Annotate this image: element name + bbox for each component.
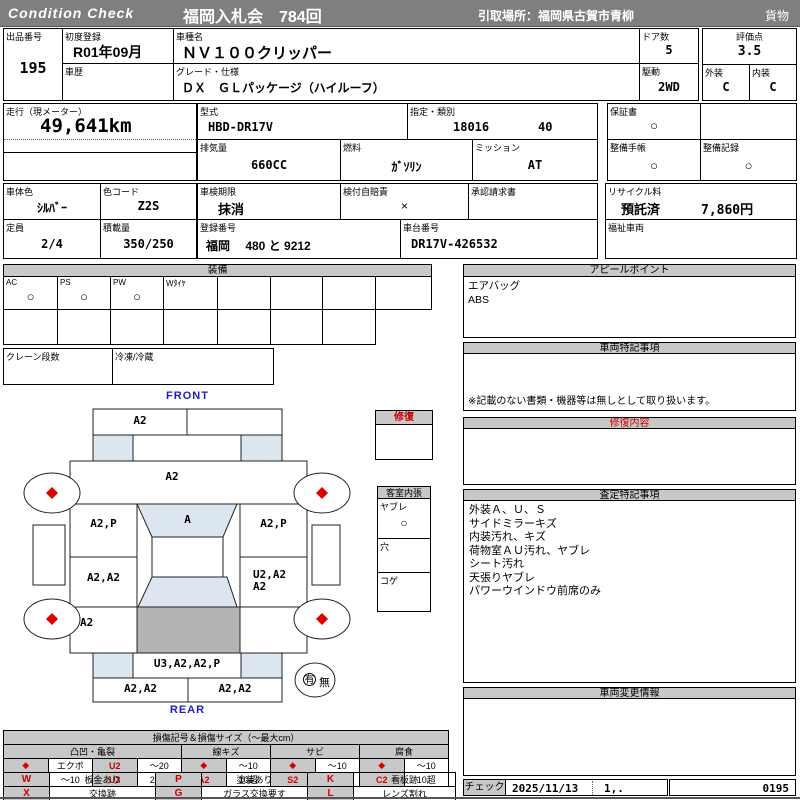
equipment-cell-empty [375,276,432,310]
pickup-location: 引取場所：福岡県古賀市青柳 [478,7,634,24]
exhibit-number-value: 195 [4,59,62,77]
legend-cell: ～10 [226,759,271,773]
legend-code: K [308,773,354,787]
auction-condition-sheet: Condition Check 福岡入札会 784回 引取場所：福岡県古賀市青柳… [0,0,800,800]
spare-present-mark: 有 [303,673,316,686]
load-capacity-cell: 積載量 350/250 [100,219,197,259]
vehicle-notes-body: ※記載のない書類・機器等は無しとして取り扱います。 [463,353,796,411]
legend-group: 線キズ [182,745,271,759]
vehicle-notes-footnote: ※記載のない書類・機器等は無しとして取り扱います。 [468,392,715,407]
equipment-cell-wtire: Wﾀｲﾔ [163,276,218,310]
spare-absent-label: 無 [319,674,330,690]
equipment-cell-ps: PS ○ [57,276,111,310]
chassis-number-cell: 車台番号 DR17V-426532 [400,219,598,259]
warranty-label: 保証書 [610,105,637,118]
diamond-icon: ◆ [271,759,316,773]
assessment-line: 内装汚れ、キズ [469,531,790,545]
diamond-icon: ◆ [360,759,405,773]
check-label-cell: チェック [463,779,506,796]
capacity-value: 2/4 [4,237,100,251]
fuel-value: ｶﾞｿﾘﾝ [341,158,472,175]
tail-right [241,653,282,678]
transmission-label: ミッション [475,141,520,154]
equipment-label: Wﾀｲﾔ [166,278,186,289]
panel-code-quarter-left: A2 [80,616,93,629]
doors-value: 5 [640,43,698,57]
panel-code-rear-bumper-left: A2,A2 [93,682,188,695]
legend-code: U2 [93,759,138,773]
score-cell: 評価点 3.5 [702,28,797,65]
panel-code-back-panel: U3,A2,A2,P [133,657,241,670]
warranty-mark: ○ [608,118,700,133]
side-step-left [33,525,65,585]
displacement-value: 660CC [198,158,340,172]
class-value-2: 40 [538,120,552,134]
inspection-label: 車検期限 [200,185,236,198]
diamond-icon: ◆ [4,759,49,773]
car-diagram: FRONT A2 A2 A A2,P A2,P A2,A2 U2,A2 A2 A… [0,390,460,720]
drive-value: 2WD [640,80,698,94]
class-value-1: 18016 [453,120,489,134]
grade-cell: グレード・仕様 ＤＸ ＧＬパッケージ（ハイルーフ） [173,63,640,101]
exterior-grade-value: C [703,80,749,94]
assessment-line: パワーウインドウ前席のみ [469,585,790,599]
appeal-line: ABS [468,293,791,307]
registration-number-label: 登録番号 [200,221,236,234]
fuel-cell: 燃料 ｶﾞｿﾘﾝ [340,139,473,181]
rear-window [138,577,237,607]
equipment-mark: ○ [58,289,110,304]
auction-title: 福岡入札会 784回 [183,3,322,27]
model-name-cell: 車種名 ＮＶ１００クリッパー [173,28,640,64]
chassis-number-label: 車台番号 [403,221,439,234]
body-color-cell: 車体色 ｼﾙﾊﾞｰ [3,183,101,220]
legend-cell: エクボ [48,759,93,773]
equipment-cell-pw: PW ○ [110,276,164,310]
car-diagram-drawing [0,390,460,720]
legend-cell: 看板跡 [354,773,456,787]
model-code-cell: 型式 HBD-DR17V [197,103,408,140]
legend-cell: ～10 [404,759,449,773]
drive-cell: 駆動 2WD [639,63,699,101]
legend-group: 腐食 [360,745,449,759]
inspection-cell: 車検期限 抹消 [197,183,341,220]
cowl-right [241,435,282,462]
color-code-label: 色コード [103,185,139,198]
legend-cell: ～20 [137,759,182,773]
divider [4,152,196,153]
equipment-cell-empty [3,309,58,345]
crane-label: クレーン段数 [6,350,60,363]
equipment-cell-empty [163,309,218,345]
rear-label: REAR [150,704,225,716]
assessment-line: 天張りヤブレ [469,572,790,586]
model-code-value: HBD-DR17V [208,120,273,134]
cabin-roof [152,537,223,577]
inspection-value: 抹消 [218,199,244,218]
recycle-fee-status: 預託済 [621,199,660,218]
recycle-fee-cell: リサイクル料 預託済 7,860円 [605,183,797,220]
equipment-label: PS [60,278,71,287]
equipment-label: AC [6,278,17,287]
doors-cell: ドア数 5 [639,28,699,64]
panel-code-windshield: A [152,513,223,526]
appeal-points-body: エアバッグ ABS [463,276,796,338]
registration-number-value: 福岡 480 と 9212 [206,237,311,254]
displacement-cell: 排気量 660CC [197,139,341,181]
history-label: 車歴 [65,65,83,78]
front-label: FRONT [150,390,225,402]
displacement-label: 排気量 [200,141,227,154]
recycle-fee-label: リサイクル料 [608,185,662,198]
chassis-number-value: DR17V-426532 [411,237,498,251]
maintenance-record-mark: ○ [701,158,796,173]
model-code-label: 型式 [200,105,218,118]
equipment-cell-ac: AC ○ [3,276,58,310]
capacity-label: 定員 [6,221,24,234]
fridge-cell: 冷凍/冷蔵 [112,348,274,385]
assessment-line: サイドミラーキズ [469,518,790,532]
exhibit-number-label: 出品番号 [6,30,42,43]
panel-code-front-door-left: A2,P [70,517,137,530]
header-bar: Condition Check 福岡入札会 784回 引取場所：福岡県古賀市青柳… [0,0,800,27]
legend-cell: 板金あり [50,773,156,787]
legend-cell: ～10 [315,759,360,773]
fuel-label: 燃料 [343,141,361,154]
grade-value: ＤＸ ＧＬパッケージ（ハイルーフ） [182,79,385,96]
panel-code-front-bumper: A2 [93,414,187,427]
model-name-value: ＮＶ１００クリッパー [182,42,332,63]
interior-grade-cell: 内装 C [749,64,797,101]
load-capacity-label: 積載量 [103,221,130,234]
equipment-mark: ○ [111,289,163,304]
change-info-body [463,698,796,776]
grade-label: グレード・仕様 [176,65,239,78]
warranty-cell: 保証書 ○ [607,103,701,140]
jibai-insurance-label: 検付自賠責 [343,185,388,198]
body-color-label: 車体色 [6,185,33,198]
panel-code-rear-door-left: A2,A2 [70,571,137,584]
exterior-grade-label: 外装 [705,66,723,79]
cargo-bed [137,607,240,653]
approval-request-label: 承認請求書 [471,185,516,198]
equipment-cell-empty [217,309,271,345]
legend-code: P [156,773,202,787]
page-bottom-rule [0,797,800,799]
interior-grade-value: C [750,80,796,94]
drive-label: 駆動 [642,65,660,78]
transmission-value: AT [473,158,597,172]
mileage-cell: 走行（現メーター） 49,641km [3,103,197,181]
interior-grade-label: 内装 [752,66,770,79]
equipment-mark: ○ [4,289,57,304]
color-code-value: Z2S [101,199,196,213]
assessment-notes-body: 外装Ａ、Ｕ、Ｓ サイドミラーキズ 内装汚れ、キズ 荷物室ＡＵ汚れ、ヤブレ シート… [463,500,796,683]
class-cell: 指定・類別 18016 40 [407,103,598,140]
score-value: 3.5 [703,44,796,59]
legend-code: W [4,773,50,787]
doors-label: ドア数 [642,30,669,43]
equipment-label: PW [113,278,126,287]
equipment-cell-empty [270,276,323,310]
welfare-vehicle-cell: 福祉車両 [605,219,797,259]
maintenance-book-label: 整備手帳 [610,141,646,154]
assessment-line: 外装Ａ、Ｕ、Ｓ [469,504,790,518]
exhibit-number-cell: 出品番号 195 [3,28,63,101]
maintenance-record-cell: 整備記録 ○ [700,139,797,181]
maintenance-book-mark: ○ [608,158,700,173]
brand-title: Condition Check [8,5,134,21]
recycle-fee-value: 7,860円 [701,199,753,218]
fridge-label: 冷凍/冷蔵 [115,350,154,363]
first-registration-cell: 初度登録 R01年09月 [62,28,174,64]
legend-group: サビ [271,745,360,759]
jibai-insurance-mark: × [341,199,468,213]
repair-marks-legend-table: W 板金あり P 塗装あり K 看板跡 X 交換跡 G ガラス交換要す L レン… [3,772,449,800]
diamond-icon: ◆ [182,759,227,773]
blank-cell [700,103,797,140]
side-step-right [312,525,340,585]
class-label: 指定・類別 [410,105,455,118]
crane-cell: クレーン段数 [3,348,113,385]
body-color-value: ｼﾙﾊﾞｰ [4,199,100,216]
divider [4,139,196,140]
check-code-value: 1,. [604,782,624,795]
equipment-cell-empty [217,276,271,310]
welfare-vehicle-label: 福祉車両 [608,221,644,234]
repair-content-body [463,428,796,485]
mileage-value: 49,641km [40,115,132,137]
color-code-cell: 色コード Z2S [100,183,197,220]
legend-group: 凸凹・亀裂 [4,745,182,759]
check-date-value: 2025/11/13 [512,782,578,795]
equipment-cell-empty [270,309,323,345]
load-capacity-value: 350/250 [101,237,196,251]
capacity-cell: 定員 2/4 [3,219,101,259]
panel-code-hood: A2 [137,470,207,483]
exterior-grade-cell: 外装 C [702,64,750,101]
divider [592,781,593,795]
legend-title: 損傷記号＆損傷サイズ（～最大cm） [4,731,449,745]
history-cell: 車歴 [62,63,174,101]
score-label: 評価点 [703,30,796,43]
cowl-left [93,435,133,462]
first-registration-value: R01年09月 [73,42,142,62]
maintenance-record-label: 整備記録 [703,141,739,154]
equipment-cell-empty [322,309,376,345]
assessment-line: 荷物室ＡＵ汚れ、ヤブレ [469,545,790,559]
equipment-cell-empty [322,276,376,310]
panel-code-front-door-right: A2,P [240,517,307,530]
equipment-cell-empty [110,309,164,345]
check-number-cell: 0195 [669,779,796,796]
vehicle-category: 貨物 [765,7,789,24]
appeal-line: エアバッグ [468,279,791,293]
tail-left [93,653,133,678]
equipment-cell-empty [57,309,111,345]
panel-code-rear-door-right-2: A2 [253,580,266,593]
check-date-cell: 2025/11/13 1,. [505,779,668,796]
check-number-value: 0195 [763,782,790,795]
jibai-insurance-cell: 検付自賠責 × [340,183,469,220]
panel-code-rear-bumper-right: A2,A2 [188,682,282,695]
assessment-line: シート汚れ [469,558,790,572]
approval-request-cell: 承認請求書 [468,183,598,220]
transmission-cell: ミッション AT [472,139,598,181]
maintenance-book-cell: 整備手帳 ○ [607,139,701,181]
legend-cell: 塗装あり [202,773,308,787]
registration-number-cell: 登録番号 福岡 480 と 9212 [197,219,401,259]
